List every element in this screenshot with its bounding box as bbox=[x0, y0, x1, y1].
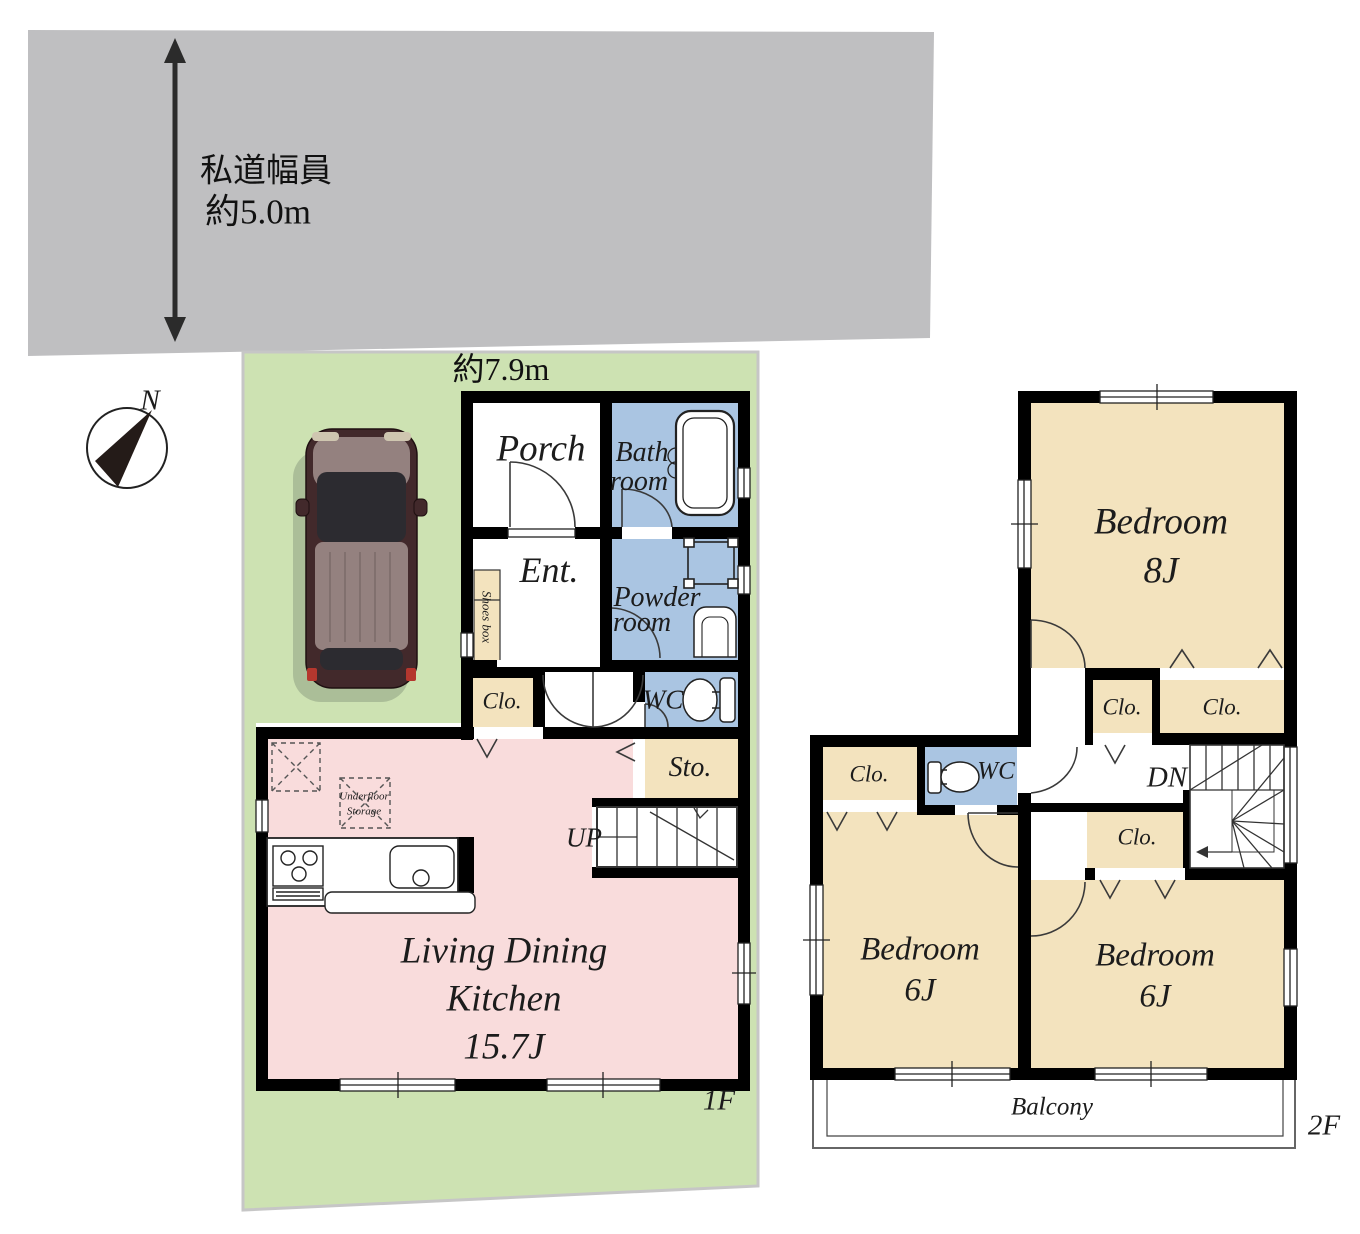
room-label-bedroom-south-name: Bedroom bbox=[1095, 940, 1215, 973]
room-label-closet-mid: Clo. bbox=[1118, 826, 1157, 849]
road-area bbox=[28, 30, 934, 356]
underfloor-label-1: Underfloor bbox=[339, 792, 389, 803]
compass-icon bbox=[87, 408, 167, 488]
room-label-closet-west: Clo. bbox=[850, 763, 889, 786]
room-label-entrance: Ent. bbox=[520, 552, 579, 588]
stairs-down-label: DN bbox=[1147, 764, 1187, 793]
underfloor-label-2: Storage bbox=[347, 807, 381, 818]
frontage-label: 約7.9m bbox=[453, 353, 550, 385]
room-label-bedroom-south-size: 6J bbox=[1139, 981, 1170, 1014]
kitchen-counter bbox=[267, 838, 475, 913]
stairs-up bbox=[597, 807, 737, 867]
stairs-up-label: UP bbox=[566, 825, 602, 852]
room-label-ldk-size: 15.7J bbox=[463, 1029, 544, 1066]
room-label-bedroom-west-name: Bedroom bbox=[860, 934, 980, 967]
room-label-powder-2: room bbox=[613, 609, 671, 637]
room-label-bathroom-2: room bbox=[610, 468, 668, 496]
bathtub-icon bbox=[668, 411, 734, 515]
room-label-storage: Sto. bbox=[669, 754, 712, 782]
toilet-icon-2f bbox=[928, 762, 979, 793]
room-label-bedroom8-name: Bedroom bbox=[1094, 504, 1228, 541]
toilet-icon-1f bbox=[683, 678, 735, 722]
floor2-label: 2F bbox=[1308, 1112, 1340, 1141]
room-label-wc-1f: WC bbox=[643, 687, 684, 714]
room-label-shoes-box: Shoes box bbox=[481, 591, 494, 643]
stove-icon bbox=[273, 846, 323, 900]
room-label-closet-1f: Clo. bbox=[483, 690, 522, 713]
room-label-ldk-2: Kitchen bbox=[446, 981, 561, 1018]
compass-north-label: N bbox=[140, 387, 159, 416]
room-label-wc-2f: WC bbox=[977, 759, 1015, 784]
room-label-closet-hall-right: Clo. bbox=[1203, 696, 1242, 719]
floor1-label: 1F bbox=[703, 1087, 735, 1116]
room-label-ldk-1: Living Dining bbox=[401, 933, 608, 970]
room-label-bedroom8-size: 8J bbox=[1144, 553, 1179, 590]
vanity-icon bbox=[694, 607, 736, 657]
floorplan-page: 私道幅員 約5.0m 約7.9m N Porch Bath room Ent. … bbox=[0, 0, 1360, 1234]
balcony-label: Balcony bbox=[1011, 1095, 1093, 1120]
room-label-closet-hall-left: Clo. bbox=[1103, 696, 1142, 719]
room-label-bedroom-west-size: 6J bbox=[904, 975, 935, 1008]
road-width-label-line2: 約5.0m bbox=[205, 195, 311, 230]
room-label-porch: Porch bbox=[496, 431, 585, 468]
road-width-label-line1: 私道幅員 bbox=[200, 156, 332, 189]
sink-icon bbox=[390, 846, 454, 888]
car-top-view bbox=[293, 429, 427, 702]
room-label-bathroom-1: Bath bbox=[616, 439, 669, 467]
